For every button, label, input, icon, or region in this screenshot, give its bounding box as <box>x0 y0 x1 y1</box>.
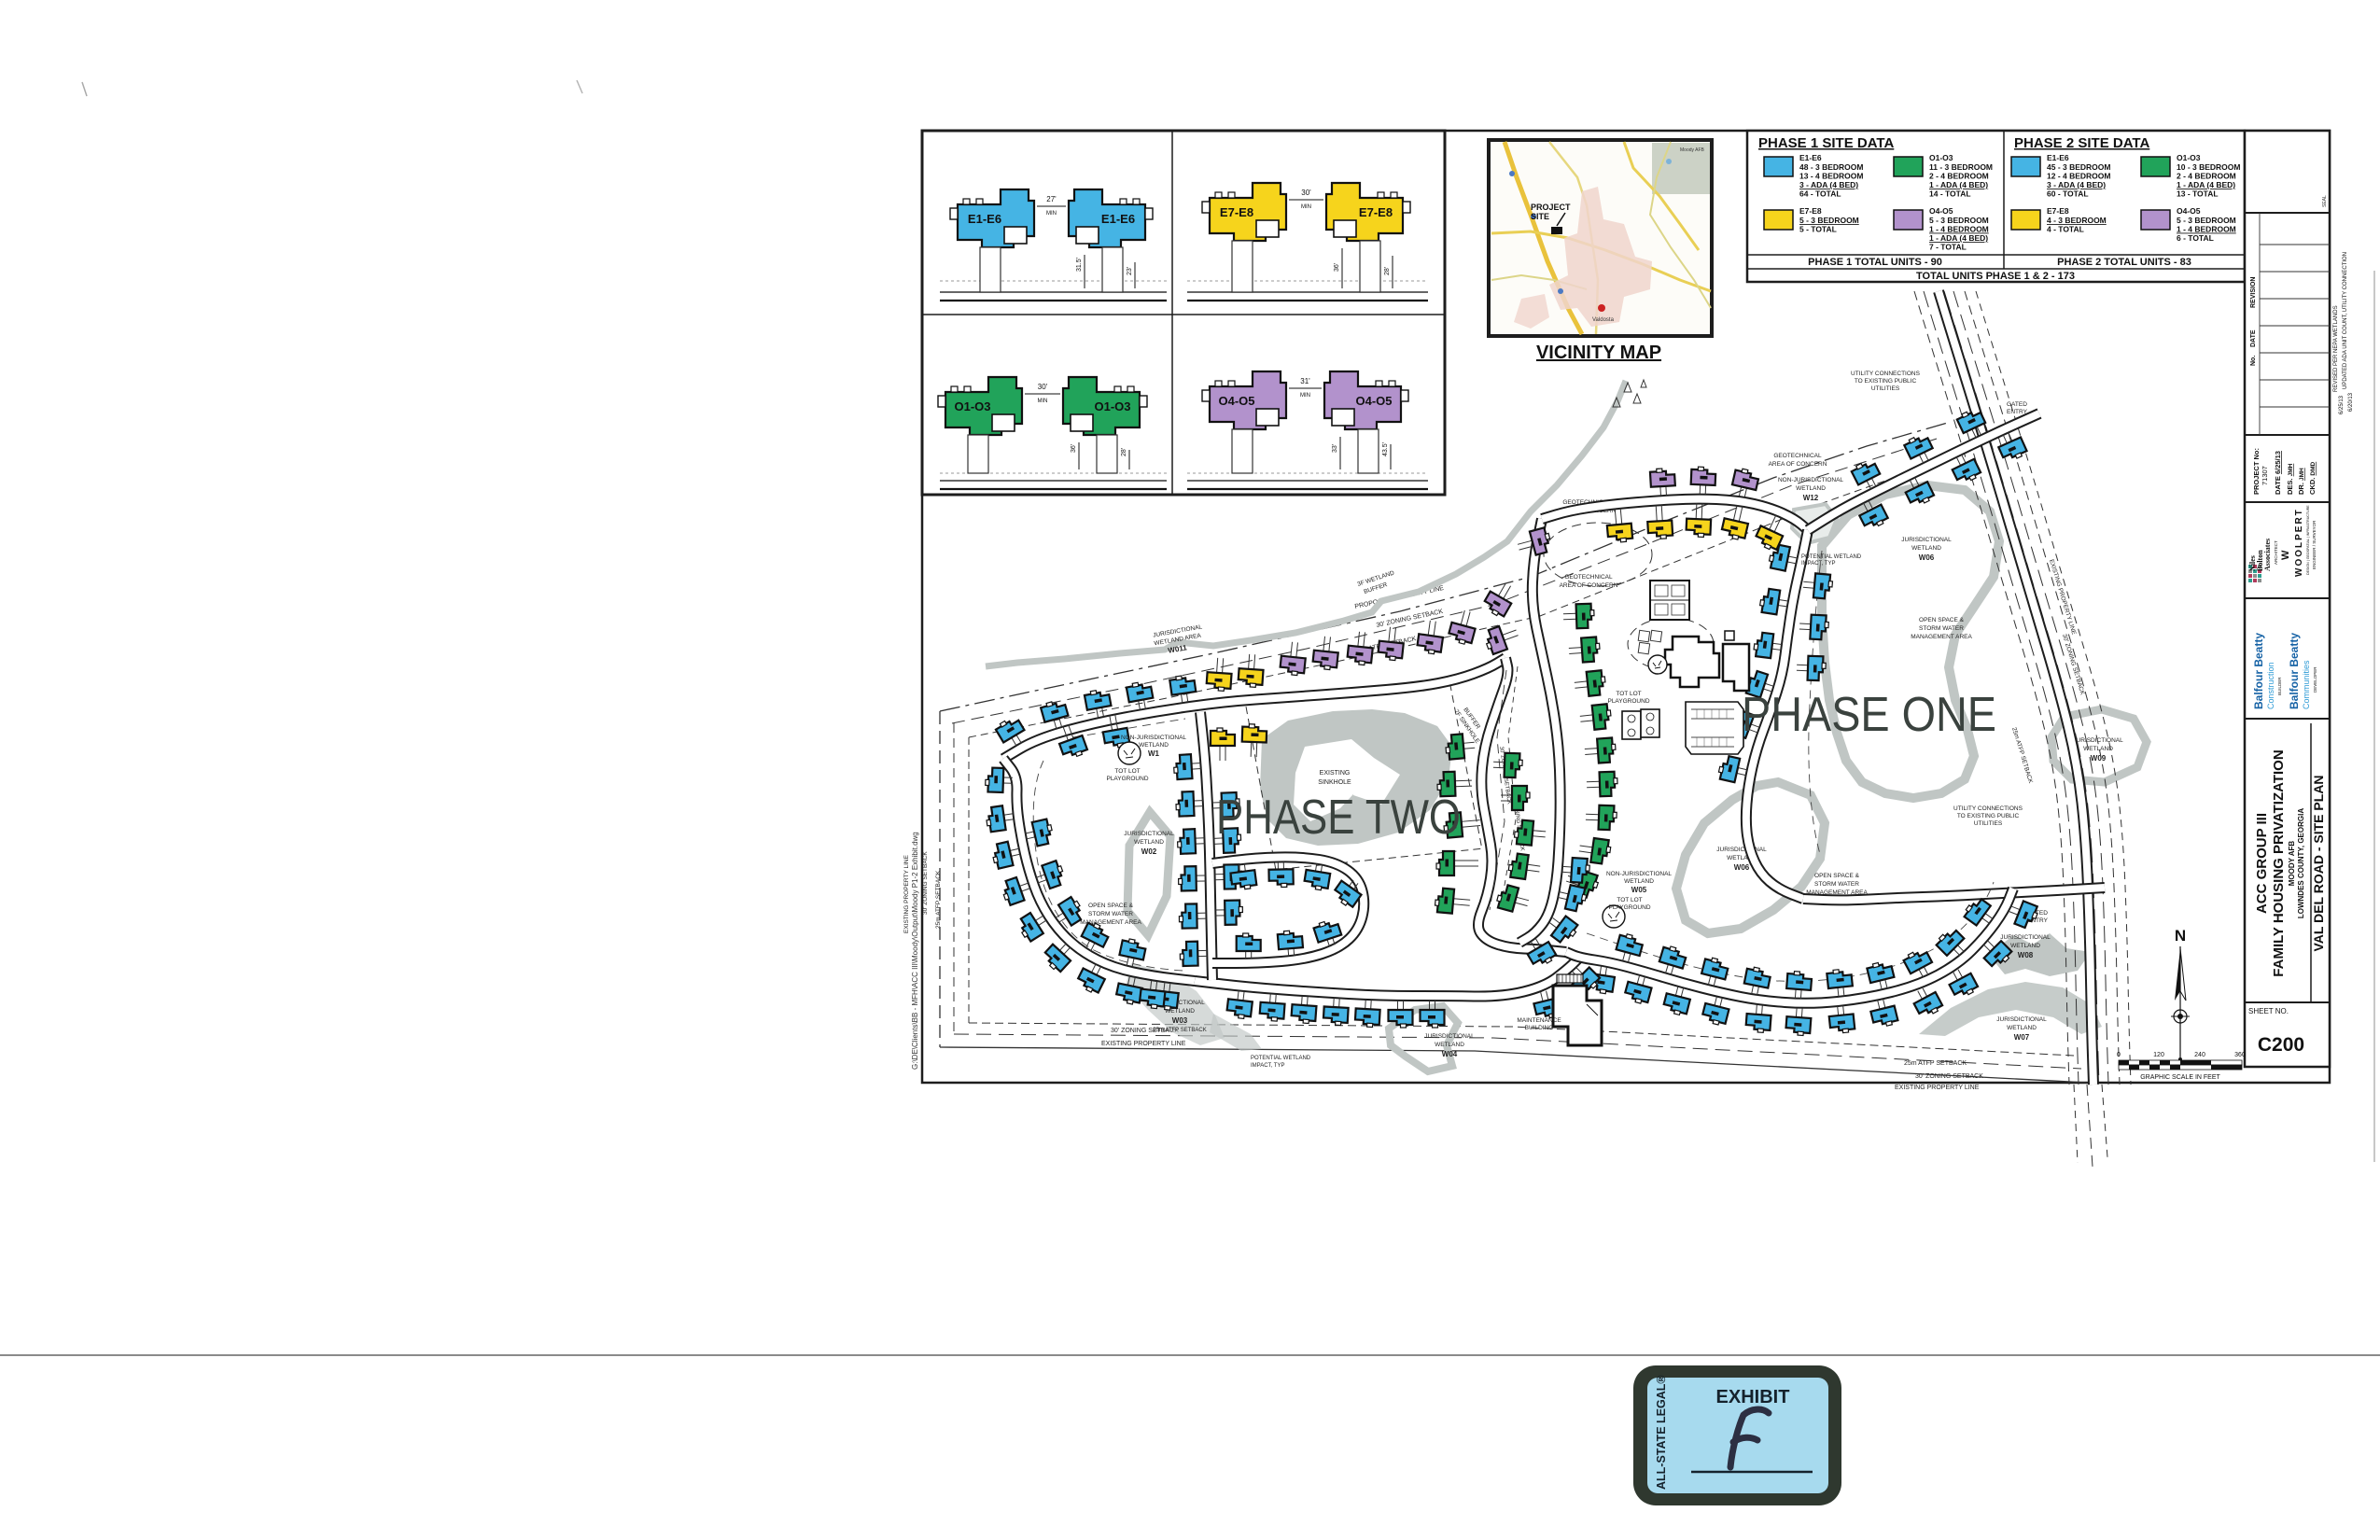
svg-text:VICINITY MAP: VICINITY MAP <box>1536 343 1661 363</box>
svg-text:36': 36' <box>1071 444 1077 453</box>
svg-text:6/20/13: 6/20/13 <box>2348 392 2354 412</box>
svg-text:IMPACT, TYP: IMPACT, TYP <box>1251 1063 1284 1069</box>
svg-text:Valdosta: Valdosta <box>1592 317 1615 323</box>
svg-text:GEOTECHNICAL: GEOTECHNICAL <box>1773 453 1822 459</box>
svg-text:ARCHITECT: ARCHITECT <box>2274 540 2278 565</box>
svg-text:SINKHOLE: SINKHOLE <box>1318 779 1351 786</box>
svg-text:12 - 4 BEDROOM: 12 - 4 BEDROOM <box>2047 172 2111 181</box>
svg-text:E7-E8: E7-E8 <box>1799 206 1822 216</box>
svg-text:OPEN SPACE &: OPEN SPACE & <box>1088 903 1134 909</box>
svg-text:REVISED PER NEPA WETLANDS: REVISED PER NEPA WETLANDS <box>2333 305 2339 392</box>
svg-text:45 - 3 BEDROOM: 45 - 3 BEDROOM <box>2047 162 2111 172</box>
svg-text:POTENTIAL WETLAND: POTENTIAL WETLAND <box>1801 554 1862 560</box>
svg-text:DR. JMH: DR. JMH <box>2297 468 2305 495</box>
svg-text:O4-O5: O4-O5 <box>2177 206 2201 216</box>
svg-text:JURISDICTIONAL: JURISDICTIONAL <box>1996 1016 2047 1023</box>
svg-text:DATE 6/25/13: DATE 6/25/13 <box>2274 451 2282 495</box>
svg-text:MANAGEMENT AREA: MANAGEMENT AREA <box>1911 634 1972 640</box>
svg-text:GRAPHIC SCALE IN FEET: GRAPHIC SCALE IN FEET <box>2140 1074 2220 1081</box>
svg-text:31.5': 31.5' <box>1076 258 1083 272</box>
svg-text:TOT LOT: TOT LOT <box>1114 768 1140 775</box>
svg-text:W: W <box>2280 550 2291 560</box>
svg-text:3 - ADA (4 BED): 3 - ADA (4 BED) <box>1799 180 1858 189</box>
svg-text:DES. JMH: DES. JMH <box>2286 463 2294 495</box>
svg-text:1 - 4 BEDROOM: 1 - 4 BEDROOM <box>1929 225 1989 234</box>
svg-text:LOWNDES COUNTY, GEORGIA: LOWNDES COUNTY, GEORGIA <box>2297 808 2305 918</box>
svg-text:E1-E6: E1-E6 <box>2047 153 2069 162</box>
svg-text:O1-O3: O1-O3 <box>954 399 990 413</box>
svg-text:28': 28' <box>1121 448 1127 456</box>
svg-text:71307: 71307 <box>2261 466 2269 485</box>
svg-text:ACC GROUP III: ACC GROUP III <box>2254 813 2270 914</box>
svg-text:UTILITIES: UTILITIES <box>1974 820 2003 827</box>
svg-text:33': 33' <box>1332 444 1338 453</box>
svg-text:W09: W09 <box>2091 754 2107 763</box>
svg-text:W1: W1 <box>1148 749 1160 758</box>
svg-text:PHASE ONE: PHASE ONE <box>1742 688 1996 742</box>
svg-text:STORM WATER: STORM WATER <box>1919 625 1964 632</box>
svg-text:W07: W07 <box>2014 1033 2030 1042</box>
svg-text:25m ATFP SETBACK: 25m ATFP SETBACK <box>935 870 942 929</box>
svg-text:GATED: GATED <box>2007 401 2027 408</box>
svg-text:STORM WATER: STORM WATER <box>1814 881 1859 888</box>
svg-text:W12: W12 <box>1803 494 1819 502</box>
svg-text:13 - TOTAL: 13 - TOTAL <box>2177 189 2219 199</box>
svg-text:WETLAND: WETLAND <box>1624 878 1654 885</box>
svg-text:2 - 4 BEDROOM: 2 - 4 BEDROOM <box>2177 172 2236 181</box>
svg-text:WOOLPERT: WOOLPERT <box>2294 508 2304 577</box>
svg-text:30': 30' <box>1301 189 1311 197</box>
svg-text:CKD. DMD: CKD. DMD <box>2308 461 2317 495</box>
svg-text:SEAL: SEAL <box>2322 195 2328 207</box>
svg-text:6 - TOTAL: 6 - TOTAL <box>2177 233 2214 243</box>
svg-text:1 - ADA (4 BED): 1 - ADA (4 BED) <box>1929 233 1988 243</box>
svg-text:5 - TOTAL: 5 - TOTAL <box>1799 225 1837 234</box>
svg-text:E1-E6: E1-E6 <box>1101 212 1135 226</box>
svg-text:TOT LOT: TOT LOT <box>1616 691 1641 697</box>
svg-text:E1-E6: E1-E6 <box>968 212 1001 226</box>
svg-text:60 - TOTAL: 60 - TOTAL <box>2047 189 2089 199</box>
svg-text:MIN: MIN <box>1300 393 1310 399</box>
svg-text:DATE: DATE <box>2250 329 2257 347</box>
svg-text:SHEET NO.: SHEET NO. <box>2248 1007 2289 1015</box>
svg-text:PLAYGROUND: PLAYGROUND <box>1608 904 1650 911</box>
svg-text:PHASE TWO: PHASE TWO <box>1216 791 1461 845</box>
svg-text:PLAYGROUND: PLAYGROUND <box>1607 698 1649 705</box>
svg-text:Balfour Beatty: Balfour Beatty <box>2252 633 2265 709</box>
svg-text:O1-O3: O1-O3 <box>1929 153 1953 162</box>
svg-text:EXISTING PROPERTY LINE: EXISTING PROPERTY LINE <box>1895 1085 1980 1091</box>
svg-text:SITE: SITE <box>1531 212 1549 221</box>
svg-text:28': 28' <box>1384 267 1391 275</box>
svg-text:43.5': 43.5' <box>1382 442 1389 456</box>
svg-text:14 - TOTAL: 14 - TOTAL <box>1929 189 1971 199</box>
svg-text:BUILDER: BUILDER <box>2277 677 2282 695</box>
svg-text:G:\DE\Clients\BB - MFH\ACC III: G:\DE\Clients\BB - MFH\ACC III\Moody\Out… <box>911 832 919 1070</box>
svg-text:Associates: Associates <box>2263 539 2272 571</box>
svg-text:No.: No. <box>2250 356 2257 366</box>
svg-text:POTENTIAL WETLAND: POTENTIAL WETLAND <box>1251 1056 1311 1061</box>
svg-text:WETLAND: WETLAND <box>1435 1042 1464 1048</box>
svg-text:E7-E8: E7-E8 <box>1220 205 1253 219</box>
svg-text:4 - TOTAL: 4 - TOTAL <box>2047 225 2084 234</box>
svg-text:EXISTING PROPERTY LINE: EXISTING PROPERTY LINE <box>903 854 910 933</box>
svg-text:DESIGN | GEOSPATIAL | INFRASTR: DESIGN | GEOSPATIAL | INFRASTRUCTURE <box>2306 505 2310 575</box>
svg-text:3 - ADA (4 BED): 3 - ADA (4 BED) <box>2047 180 2106 189</box>
svg-text:64 - TOTAL: 64 - TOTAL <box>1799 189 1841 199</box>
svg-text:GEOTECHNICAL: GEOTECHNICAL <box>1564 574 1613 581</box>
svg-text:30': 30' <box>1038 383 1048 391</box>
svg-text:W08: W08 <box>2018 951 2034 959</box>
svg-text:27': 27' <box>1046 195 1057 203</box>
svg-text:PROJECT: PROJECT <box>1531 203 1571 212</box>
svg-text:O1-O3: O1-O3 <box>2177 153 2201 162</box>
svg-text:UTILITY CONNECTIONS: UTILITY CONNECTIONS <box>1953 805 2023 812</box>
svg-text:PHASE 1 SITE DATA: PHASE 1 SITE DATA <box>1758 135 1894 151</box>
svg-text:O4-O5: O4-O5 <box>1929 206 1953 216</box>
svg-text:W06: W06 <box>1734 863 1750 872</box>
svg-text:MIN: MIN <box>1038 399 1048 404</box>
svg-text:AREA OF CONCERN: AREA OF CONCERN <box>1769 461 1827 468</box>
svg-text:31': 31' <box>1300 377 1310 385</box>
svg-text:30' ZONING SETBACK: 30' ZONING SETBACK <box>1915 1073 1983 1080</box>
svg-text:O4-O5: O4-O5 <box>1218 394 1254 408</box>
svg-text:5 - 3 BEDROOM: 5 - 3 BEDROOM <box>1799 216 1859 225</box>
svg-text:IMPACT, TYP: IMPACT, TYP <box>1801 561 1835 567</box>
svg-text:5 - 3 BEDROOM: 5 - 3 BEDROOM <box>1929 216 1989 225</box>
svg-text:BUILDING: BUILDING <box>1525 1025 1554 1031</box>
svg-text:Communities: Communities <box>2302 660 2311 709</box>
svg-text:REVISION: REVISION <box>2250 277 2257 308</box>
svg-text:W05: W05 <box>1631 886 1647 894</box>
svg-text:E7-E8: E7-E8 <box>2047 206 2069 216</box>
svg-text:JURISDICTIONAL: JURISDICTIONAL <box>1901 537 1952 543</box>
svg-text:23': 23' <box>1127 267 1133 275</box>
svg-text:360: 360 <box>2234 1052 2246 1058</box>
svg-text:EXISTING PROPERTY LINE: EXISTING PROPERTY LINE <box>1101 1041 1186 1047</box>
svg-text:TOT LOT: TOT LOT <box>1617 897 1642 903</box>
svg-text:OPEN SPACE &: OPEN SPACE & <box>1919 617 1965 623</box>
svg-text:OPEN SPACE &: OPEN SPACE & <box>1814 873 1860 879</box>
svg-text:AREA OF CONCERN: AREA OF CONCERN <box>1560 582 1618 589</box>
svg-text:UTILITY CONNECTIONS: UTILITY CONNECTIONS <box>1851 371 1921 377</box>
svg-text:WETLAND: WETLAND <box>1796 485 1826 492</box>
svg-text:1 - ADA (4 BED): 1 - ADA (4 BED) <box>1929 180 1988 189</box>
svg-text:NON-JURISDICTIONAL: NON-JURISDICTIONAL <box>1121 735 1186 741</box>
svg-text:MOODY AFB: MOODY AFB <box>2288 841 2296 887</box>
svg-text:48 - 3 BEDROOM: 48 - 3 BEDROOM <box>1799 162 1864 172</box>
svg-text:C200: C200 <box>2258 1034 2304 1056</box>
svg-text:JURISDICTIONAL: JURISDICTIONAL <box>1424 1033 1475 1040</box>
svg-text:25m ATFP SETBACK: 25m ATFP SETBACK <box>1153 1028 1206 1033</box>
svg-text:Balfour Beatty: Balfour Beatty <box>2288 633 2301 709</box>
svg-text:TO EXISTING PUBLIC: TO EXISTING PUBLIC <box>1855 378 1917 385</box>
svg-text:VAL DEL ROAD - SITE PLAN: VAL DEL ROAD - SITE PLAN <box>2311 775 2326 951</box>
svg-text:240: 240 <box>2194 1052 2205 1058</box>
svg-text:WETLAND: WETLAND <box>2007 1025 2037 1031</box>
svg-text:O1-O3: O1-O3 <box>1094 399 1130 413</box>
svg-text:5 - 3 BEDROOM: 5 - 3 BEDROOM <box>2177 216 2236 225</box>
svg-text:WETLAND: WETLAND <box>1139 742 1169 749</box>
svg-text:25m ATFP SETBACK: 25m ATFP SETBACK <box>1904 1060 1967 1067</box>
svg-text:MIN: MIN <box>1046 211 1057 217</box>
svg-text:NON-JURISDICTIONAL: NON-JURISDICTIONAL <box>1778 477 1843 483</box>
svg-text:PHASE 2 SITE DATA: PHASE 2 SITE DATA <box>2014 135 2149 151</box>
svg-text:JURISDICTIONAL: JURISDICTIONAL <box>2000 934 2051 941</box>
svg-text:11 - 3 BEDROOM: 11 - 3 BEDROOM <box>1929 162 1993 172</box>
svg-text:W03: W03 <box>1172 1016 1188 1025</box>
svg-text:W02: W02 <box>1141 847 1157 856</box>
svg-text:PLAYGROUND: PLAYGROUND <box>1106 776 1148 782</box>
svg-text:Construction: Construction <box>2266 662 2275 709</box>
svg-text:ENTRY: ENTRY <box>2007 409 2028 415</box>
svg-text:1 - ADA (4 BED): 1 - ADA (4 BED) <box>2177 180 2235 189</box>
svg-text:N: N <box>2175 927 2186 945</box>
svg-text:1 - 4 BEDROOM: 1 - 4 BEDROOM <box>2177 225 2236 234</box>
svg-text:NON-JURISDICTIONAL: NON-JURISDICTIONAL <box>1606 871 1672 877</box>
svg-text:FAMILY HOUSING PRIVATIZATION: FAMILY HOUSING PRIVATIZATION <box>2271 749 2287 976</box>
svg-text:EXISTING: EXISTING <box>1320 770 1351 777</box>
svg-text:WETLAND: WETLAND <box>2010 943 2040 949</box>
svg-text:UTILITIES: UTILITIES <box>1871 385 1900 392</box>
svg-text:30' ZONING SETBACK: 30' ZONING SETBACK <box>922 851 929 915</box>
svg-text:JURISDICTIONAL: JURISDICTIONAL <box>1124 831 1174 837</box>
svg-text:PHASE 2 TOTAL UNITS - 83: PHASE 2 TOTAL UNITS - 83 <box>2057 257 2191 268</box>
svg-text:PROJECT No:: PROJECT No: <box>2252 448 2261 495</box>
svg-text:13 - 4 BEDROOM: 13 - 4 BEDROOM <box>1799 172 1864 181</box>
svg-text:36': 36' <box>1334 263 1340 272</box>
svg-text:WETLAND: WETLAND <box>1134 839 1164 846</box>
svg-text:120: 120 <box>2153 1052 2164 1058</box>
svg-text:4 - 3 BEDROOM: 4 - 3 BEDROOM <box>2047 216 2107 225</box>
svg-text:E1-E6: E1-E6 <box>1799 153 1822 162</box>
svg-text:WETLAND: WETLAND <box>1911 545 1941 552</box>
svg-text:W06: W06 <box>1919 553 1935 562</box>
svg-text:7 - TOTAL: 7 - TOTAL <box>1929 243 1967 252</box>
svg-text:E7-E8: E7-E8 <box>1359 205 1393 219</box>
svg-text:STORM WATER: STORM WATER <box>1088 911 1133 917</box>
svg-text:MAINTENANCE: MAINTENANCE <box>1517 1017 1561 1024</box>
svg-text:6/25/13: 6/25/13 <box>2339 395 2345 414</box>
svg-text:MIN: MIN <box>1301 204 1311 210</box>
svg-text:10 - 3 BEDROOM: 10 - 3 BEDROOM <box>2177 162 2241 172</box>
svg-text:TOTAL UNITS PHASE 1 & 2 - 173: TOTAL UNITS PHASE 1 & 2 - 173 <box>1916 271 2075 282</box>
svg-text:O4-O5: O4-O5 <box>1355 394 1392 408</box>
svg-text:W04: W04 <box>1442 1050 1458 1058</box>
svg-text:EXHIBIT: EXHIBIT <box>1716 1387 1790 1407</box>
svg-text:DEVELOPER: DEVELOPER <box>2313 666 2317 693</box>
svg-text:2 - 4 BEDROOM: 2 - 4 BEDROOM <box>1929 172 1989 181</box>
svg-text:TO EXISTING PUBLIC: TO EXISTING PUBLIC <box>1957 813 2020 819</box>
svg-text:PHASE 1 TOTAL UNITS - 90: PHASE 1 TOTAL UNITS - 90 <box>1808 257 1942 268</box>
svg-text:UPDATED ADA UNIT COUNT, UTILIT: UPDATED ADA UNIT COUNT, UTILITY CONNECTI… <box>2343 252 2348 389</box>
svg-text:JURISDICTIONAL: JURISDICTIONAL <box>1716 847 1767 853</box>
svg-text:ENGINEER / SURVEYOR: ENGINEER / SURVEYOR <box>2312 520 2317 569</box>
svg-text:0: 0 <box>2117 1052 2121 1058</box>
svg-text:ALL-STATE LEGAL®: ALL-STATE LEGAL® <box>1655 1375 1668 1490</box>
svg-text:Moody AFB: Moody AFB <box>1680 147 1705 153</box>
